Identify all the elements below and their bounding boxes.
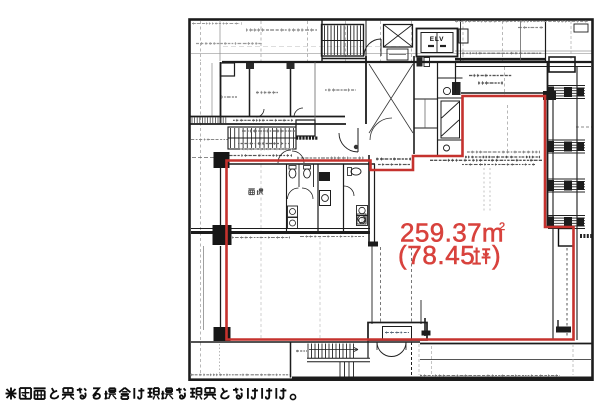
svg-text:): ) <box>492 240 501 270</box>
svg-text:2: 2 <box>499 221 505 233</box>
svg-text:(78.45: (78.45 <box>398 240 475 270</box>
svg-text:ELV: ELV <box>430 36 445 43</box>
